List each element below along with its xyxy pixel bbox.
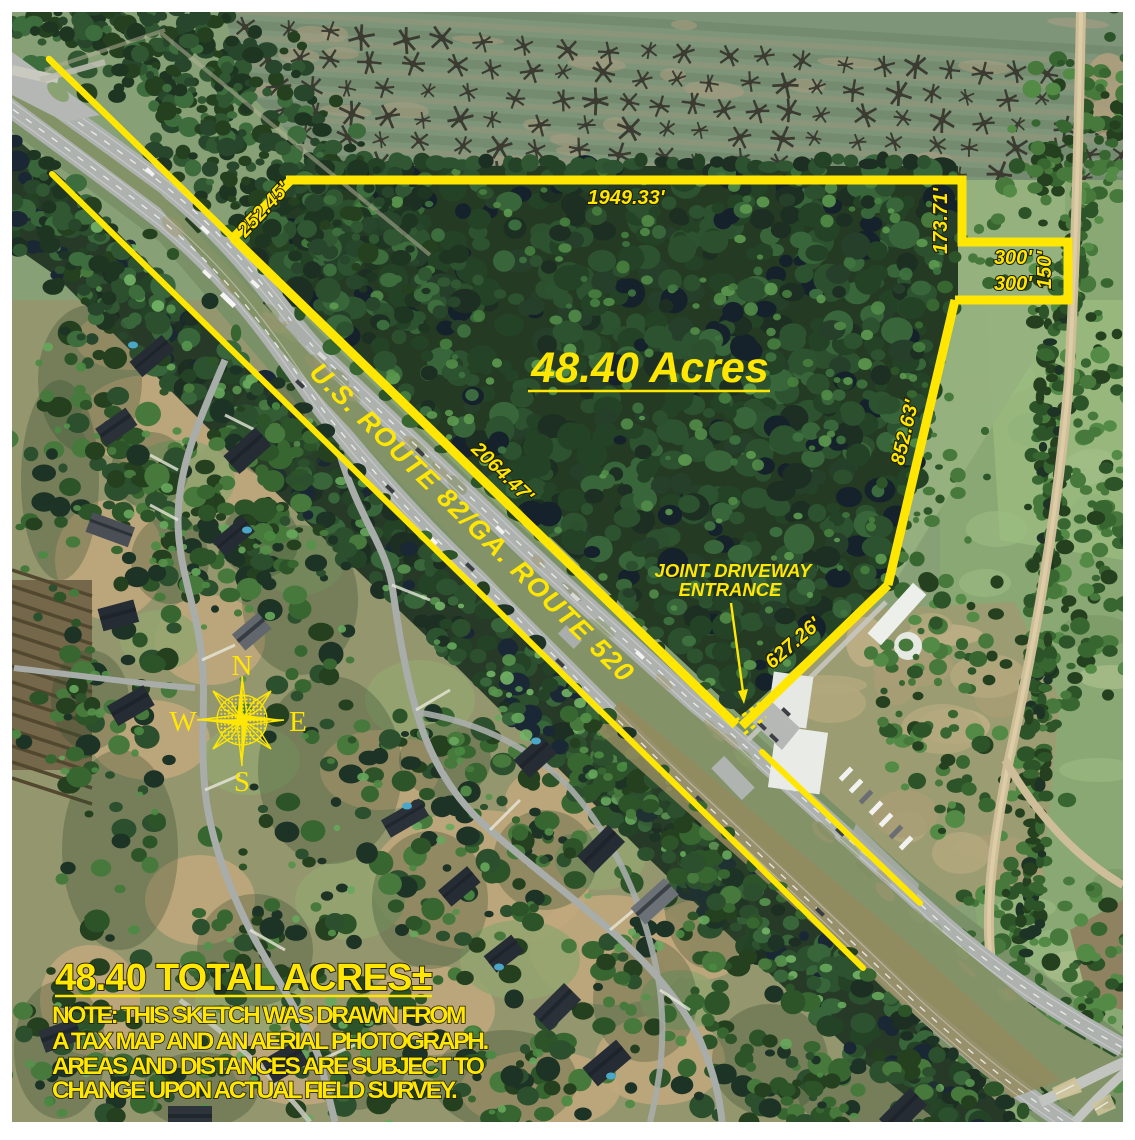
svg-text:48.40 TOTAL ACRES±: 48.40 TOTAL ACRES± bbox=[55, 957, 432, 999]
svg-text:ENTRANCE: ENTRANCE bbox=[679, 579, 782, 600]
svg-text:NOTE: THIS SKETCH WAS DRAWN FR: NOTE: THIS SKETCH WAS DRAWN FROM bbox=[52, 1002, 465, 1029]
svg-text:W: W bbox=[169, 706, 197, 738]
svg-text:CHANGE UPON ACTUAL FIELD SURVE: CHANGE UPON ACTUAL FIELD SURVEY. bbox=[52, 1077, 457, 1104]
svg-text:AREAS AND DISTANCES ARE SUBJEC: AREAS AND DISTANCES ARE SUBJECT TO bbox=[52, 1053, 485, 1080]
svg-text:A TAX MAP AND AN AERIAL PHOTOG: A TAX MAP AND AN AERIAL PHOTOGRAPH. bbox=[52, 1028, 489, 1055]
svg-text:JOINT DRIVEWAY: JOINT DRIVEWAY bbox=[655, 560, 814, 581]
svg-text:150': 150' bbox=[1034, 250, 1056, 289]
svg-text:48.40 Acres: 48.40 Acres bbox=[530, 344, 769, 392]
svg-text:300': 300' bbox=[994, 273, 1033, 295]
svg-text:N: N bbox=[232, 650, 253, 682]
svg-text:1949.33': 1949.33' bbox=[587, 187, 665, 209]
svg-text:173.71': 173.71' bbox=[930, 187, 952, 254]
svg-text:S: S bbox=[234, 766, 250, 798]
svg-text:E: E bbox=[289, 706, 307, 738]
svg-text:300': 300' bbox=[994, 247, 1033, 269]
